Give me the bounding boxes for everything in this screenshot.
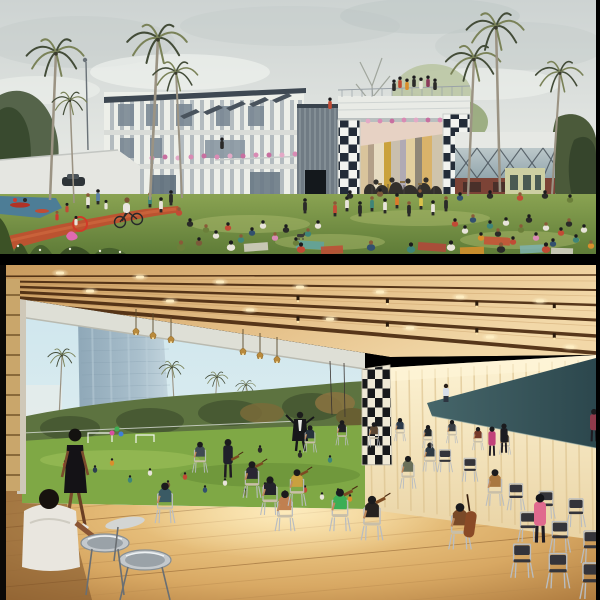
person-head (426, 76, 429, 79)
person-head (476, 427, 480, 431)
person-head (449, 240, 453, 244)
person-head (204, 224, 207, 227)
chair-leg (334, 517, 335, 531)
person-body (370, 200, 374, 209)
track-light-glow (476, 333, 478, 335)
person-body (383, 202, 387, 211)
lawn-person (74, 216, 77, 226)
child-body (74, 219, 77, 225)
chair-seat (158, 507, 173, 510)
person-body (419, 198, 423, 207)
recessed-light (166, 300, 174, 303)
pendant-bulb (135, 333, 137, 335)
person-head (369, 240, 373, 244)
person-head (567, 218, 570, 221)
person-body (159, 201, 163, 210)
person-legs (170, 202, 173, 205)
person-head (534, 232, 537, 235)
person-head (167, 480, 169, 482)
person-head (294, 237, 297, 240)
pendant-bulb (170, 341, 172, 343)
person-legs (445, 208, 448, 211)
person-head (489, 427, 494, 432)
person-body (358, 205, 362, 214)
person-body (328, 457, 332, 463)
child-body (55, 214, 58, 220)
person-head (316, 220, 319, 223)
chair-back-pad (585, 532, 596, 541)
terrace-person (412, 76, 416, 88)
person-head (161, 483, 169, 491)
person-head (427, 443, 432, 448)
person-body (470, 217, 476, 223)
person-head (574, 234, 577, 237)
chair-leg (490, 494, 491, 506)
palm-crown (61, 355, 63, 357)
terrace-person (405, 79, 409, 91)
chair-seat (552, 535, 567, 538)
chair-seat (521, 525, 536, 528)
person-legs (160, 209, 163, 212)
chair-leg (474, 471, 475, 481)
terrace-person (398, 77, 402, 89)
chair-leg (521, 498, 522, 510)
chair-leg (511, 498, 512, 510)
person-head (519, 224, 522, 227)
person-body (377, 191, 383, 197)
person-head (340, 420, 345, 425)
picnic-blanket (520, 244, 544, 253)
person-head (426, 425, 430, 429)
lawn-person (358, 201, 362, 216)
picnic-blanket (551, 248, 573, 254)
person-head (249, 461, 256, 468)
person-head (273, 232, 276, 235)
track-light-glow (476, 306, 478, 308)
chair-leg (290, 518, 291, 531)
pendant-bulb (276, 361, 278, 363)
chair-seat (305, 442, 315, 444)
person-head (358, 201, 362, 205)
person-body (503, 220, 509, 226)
person-head (224, 478, 226, 480)
person-legs (371, 208, 374, 211)
person-head (333, 201, 337, 205)
chair-leg (564, 573, 565, 589)
person-head (303, 198, 307, 202)
person-body (298, 452, 302, 458)
person-head (188, 218, 191, 221)
palm-crown (54, 52, 58, 56)
palm-crown (216, 377, 217, 378)
person-body (320, 494, 324, 500)
person-legs (408, 213, 411, 216)
child-head (75, 216, 78, 219)
track-light-fixture (386, 322, 389, 327)
chair-back-pad (553, 523, 567, 532)
chair-leg (264, 503, 265, 516)
person-body (249, 230, 255, 236)
track-light-fixture (297, 316, 300, 321)
person-body (412, 79, 416, 87)
person-body (500, 428, 507, 442)
person-head (306, 228, 309, 231)
chair-leg (403, 478, 404, 489)
chair-seat (332, 514, 347, 517)
person-body (495, 231, 501, 237)
chair-seat (425, 460, 436, 462)
person-body (227, 244, 235, 251)
person-body (558, 230, 564, 236)
recessed-light (536, 300, 544, 303)
track-light-fixture (475, 328, 478, 333)
chair-leg (522, 529, 523, 542)
person-head (456, 503, 465, 512)
person-body (407, 246, 415, 253)
lawn-person (431, 200, 435, 215)
child-head (66, 203, 69, 206)
person-head (294, 469, 301, 476)
chair-seat (509, 496, 522, 498)
person-head (479, 232, 482, 235)
person-body (534, 502, 546, 526)
chair-leg (528, 563, 529, 578)
person-body (590, 414, 596, 430)
person-body (433, 82, 437, 90)
person-legs (334, 213, 337, 216)
chair-leg (292, 494, 293, 506)
person-head (383, 198, 387, 202)
chair-seat (439, 460, 450, 462)
person-body (407, 205, 411, 214)
chair-leg (586, 549, 587, 563)
person-body (487, 193, 493, 199)
person-head (499, 242, 503, 246)
person-body (305, 231, 311, 237)
terrace-person (433, 79, 437, 91)
person-body (223, 445, 233, 464)
terrace-person (220, 138, 224, 150)
person-head (412, 76, 415, 79)
pendant-bulb (259, 357, 261, 359)
person-body (426, 79, 430, 87)
lawn-person (159, 197, 163, 212)
person-body (542, 246, 550, 253)
stage-opening (360, 114, 443, 206)
person-head (239, 234, 242, 237)
chair-back-pad (440, 451, 450, 457)
palm-crown (171, 367, 173, 369)
person-leg (543, 526, 544, 543)
lawn-person (407, 201, 411, 216)
person-body (213, 233, 219, 239)
left-dark-edge (0, 265, 6, 600)
chair-leg (302, 494, 303, 506)
person-head (488, 220, 491, 223)
person-legs (87, 205, 90, 208)
person-body (452, 221, 458, 227)
person-head (544, 242, 548, 246)
person-body (457, 195, 463, 201)
chair-seat (396, 432, 404, 434)
person-head (458, 192, 461, 195)
person-head (197, 442, 203, 448)
terrace-person (419, 78, 423, 90)
child-head (56, 211, 59, 214)
person-head (551, 238, 554, 241)
person-head (504, 217, 507, 220)
palm-crown (245, 385, 246, 386)
picnic-blanket (460, 247, 484, 254)
recessed-light (56, 272, 64, 275)
lawn-person (345, 196, 349, 211)
person-body (478, 235, 484, 241)
window-stack-frame (6, 279, 20, 491)
person-head (518, 192, 521, 195)
terrace-person (426, 76, 430, 88)
chair-back-pad (465, 459, 476, 466)
chair-seat (569, 511, 583, 514)
chair-seat (584, 545, 596, 548)
person-head (372, 422, 377, 427)
person-body (462, 228, 468, 234)
palm-crown (558, 72, 561, 75)
lawn-person (383, 198, 387, 213)
chair-seat (263, 500, 277, 503)
person-head (179, 240, 183, 244)
track-light-fixture (553, 333, 556, 338)
rendering-collage: Exterior rendering: community arts cente… (0, 0, 600, 600)
person-head (250, 227, 253, 230)
interior-rendering-panel: Interior rendering: wood-lined rehearsal… (0, 265, 596, 600)
person-head (433, 79, 436, 82)
person-head (129, 475, 131, 477)
chair-leg (554, 539, 555, 553)
recessed-light (136, 276, 144, 279)
person-body (303, 202, 307, 211)
person-body (223, 480, 227, 486)
person-head (281, 491, 289, 499)
person-body (367, 244, 375, 251)
lawn-person (96, 189, 100, 204)
track-light-fixture (475, 301, 478, 306)
person-head (418, 189, 421, 192)
person-head (398, 77, 401, 80)
recessed-light (296, 286, 304, 289)
person-leg (536, 526, 537, 543)
lawn-person (303, 198, 307, 213)
person-head (299, 450, 301, 452)
person-head (392, 80, 395, 83)
chair-leg (566, 539, 567, 553)
person-head (96, 189, 100, 193)
person-head (94, 465, 96, 467)
person-head (111, 458, 113, 460)
person-head (544, 222, 547, 225)
chair-seat (369, 437, 378, 439)
chair-leg (453, 534, 454, 549)
person-body (542, 193, 548, 199)
person-legs (149, 204, 152, 207)
lawn-person (86, 193, 90, 208)
person-head (407, 201, 411, 205)
person-body (225, 225, 231, 231)
person-body (176, 210, 182, 216)
lawn-person (55, 211, 58, 221)
chair-leg (570, 515, 571, 528)
person-body (431, 204, 435, 213)
person-body (345, 200, 349, 209)
palm-crown (156, 38, 160, 42)
person-body (128, 477, 132, 483)
recessed-light (326, 318, 334, 321)
recessed-light (406, 327, 414, 330)
chair-back-pad (550, 555, 566, 565)
person-body (272, 235, 278, 241)
person-body (260, 223, 266, 229)
chair-seat (194, 460, 205, 462)
person-body (417, 192, 423, 198)
person-body (526, 217, 532, 223)
chair-leg (551, 573, 552, 589)
person-head (444, 196, 448, 200)
person-body (86, 197, 90, 206)
person-body (148, 470, 152, 476)
person-head (197, 237, 200, 240)
person-body (392, 83, 396, 91)
chair-leg (346, 517, 347, 531)
person-body (203, 487, 207, 493)
person-head (261, 220, 264, 223)
recessed-light (376, 291, 384, 294)
chair-leg (551, 506, 552, 518)
person-body (566, 221, 572, 227)
person-body (581, 227, 587, 233)
person-head (501, 424, 506, 429)
chair-seat (424, 439, 432, 441)
person-head (450, 420, 454, 424)
person-head (149, 468, 151, 470)
chair-seat (402, 476, 414, 478)
person-body (187, 221, 193, 227)
person-head (368, 496, 376, 504)
person-head (559, 227, 562, 230)
person-body (96, 193, 100, 202)
chair-back-pad (569, 500, 582, 508)
person-body (518, 227, 524, 233)
track-light-glow (553, 308, 555, 310)
person-body (93, 467, 97, 473)
chair-leg (515, 563, 516, 578)
chair-seat (583, 579, 596, 582)
chair-seat (474, 441, 482, 443)
person-body (533, 235, 539, 241)
person-head (488, 190, 491, 193)
chair-seat (549, 569, 566, 572)
person-body (488, 431, 495, 445)
person-body (110, 460, 114, 466)
person-head (299, 242, 303, 246)
person-body (333, 205, 337, 214)
person-head (527, 214, 530, 217)
lawn-person (370, 196, 374, 211)
person-body (183, 474, 187, 480)
person-body (220, 141, 224, 149)
lawn-person (395, 193, 399, 208)
person-head (431, 200, 435, 204)
person-head (321, 492, 323, 494)
person-legs (384, 210, 387, 213)
recessed-light (486, 336, 494, 339)
person-body (283, 227, 289, 233)
chair-seat (290, 491, 303, 493)
person-body (588, 243, 594, 249)
recessed-light (216, 281, 224, 284)
lawn-person (65, 203, 68, 213)
person-legs (346, 208, 349, 211)
terrace-person (328, 98, 332, 110)
picnic-blanket (244, 242, 268, 252)
person-body (573, 237, 579, 243)
track-light-glow (297, 321, 299, 323)
chair-leg (257, 486, 258, 498)
chair-seat (464, 469, 476, 471)
chair-back-pad (514, 545, 530, 555)
chair-seat (448, 434, 456, 436)
chair-leg (500, 494, 501, 506)
lawn-person (169, 190, 173, 205)
recessed-light (456, 296, 464, 299)
track-light-fixture (386, 298, 389, 303)
palm-crown (69, 100, 71, 102)
person-head (471, 214, 474, 217)
terrace-person (392, 80, 396, 92)
person-body (447, 244, 455, 251)
person-head (395, 193, 399, 197)
chair-leg (159, 510, 160, 523)
checkerboard-column (362, 365, 392, 465)
person-head (492, 469, 499, 476)
track-light-fixture (553, 304, 556, 309)
person-legs (359, 213, 362, 216)
person-head (568, 194, 571, 197)
chair-seat (364, 522, 380, 525)
chair-leg (533, 529, 534, 542)
person-head (284, 224, 287, 227)
person-head (177, 207, 180, 210)
person-body (177, 244, 185, 251)
chair-back-pad (521, 513, 535, 522)
person-head (259, 445, 261, 447)
person-head (328, 98, 331, 101)
person-body (395, 197, 399, 206)
person-head (169, 190, 173, 194)
picnic-blanket (484, 236, 510, 245)
chair-back-pad (510, 485, 522, 493)
chair-leg (585, 583, 586, 599)
person-head (409, 242, 413, 246)
person-body (315, 223, 321, 229)
person-head (159, 197, 163, 201)
person-head (370, 196, 374, 200)
exterior-rendering-panel: Exterior rendering: community arts cente… (0, 0, 596, 254)
person-head (589, 240, 592, 243)
chair-leg (378, 526, 379, 540)
person-legs (396, 205, 399, 208)
lawn-person (104, 200, 107, 210)
chair-leg (366, 526, 367, 540)
person-head (266, 476, 273, 483)
